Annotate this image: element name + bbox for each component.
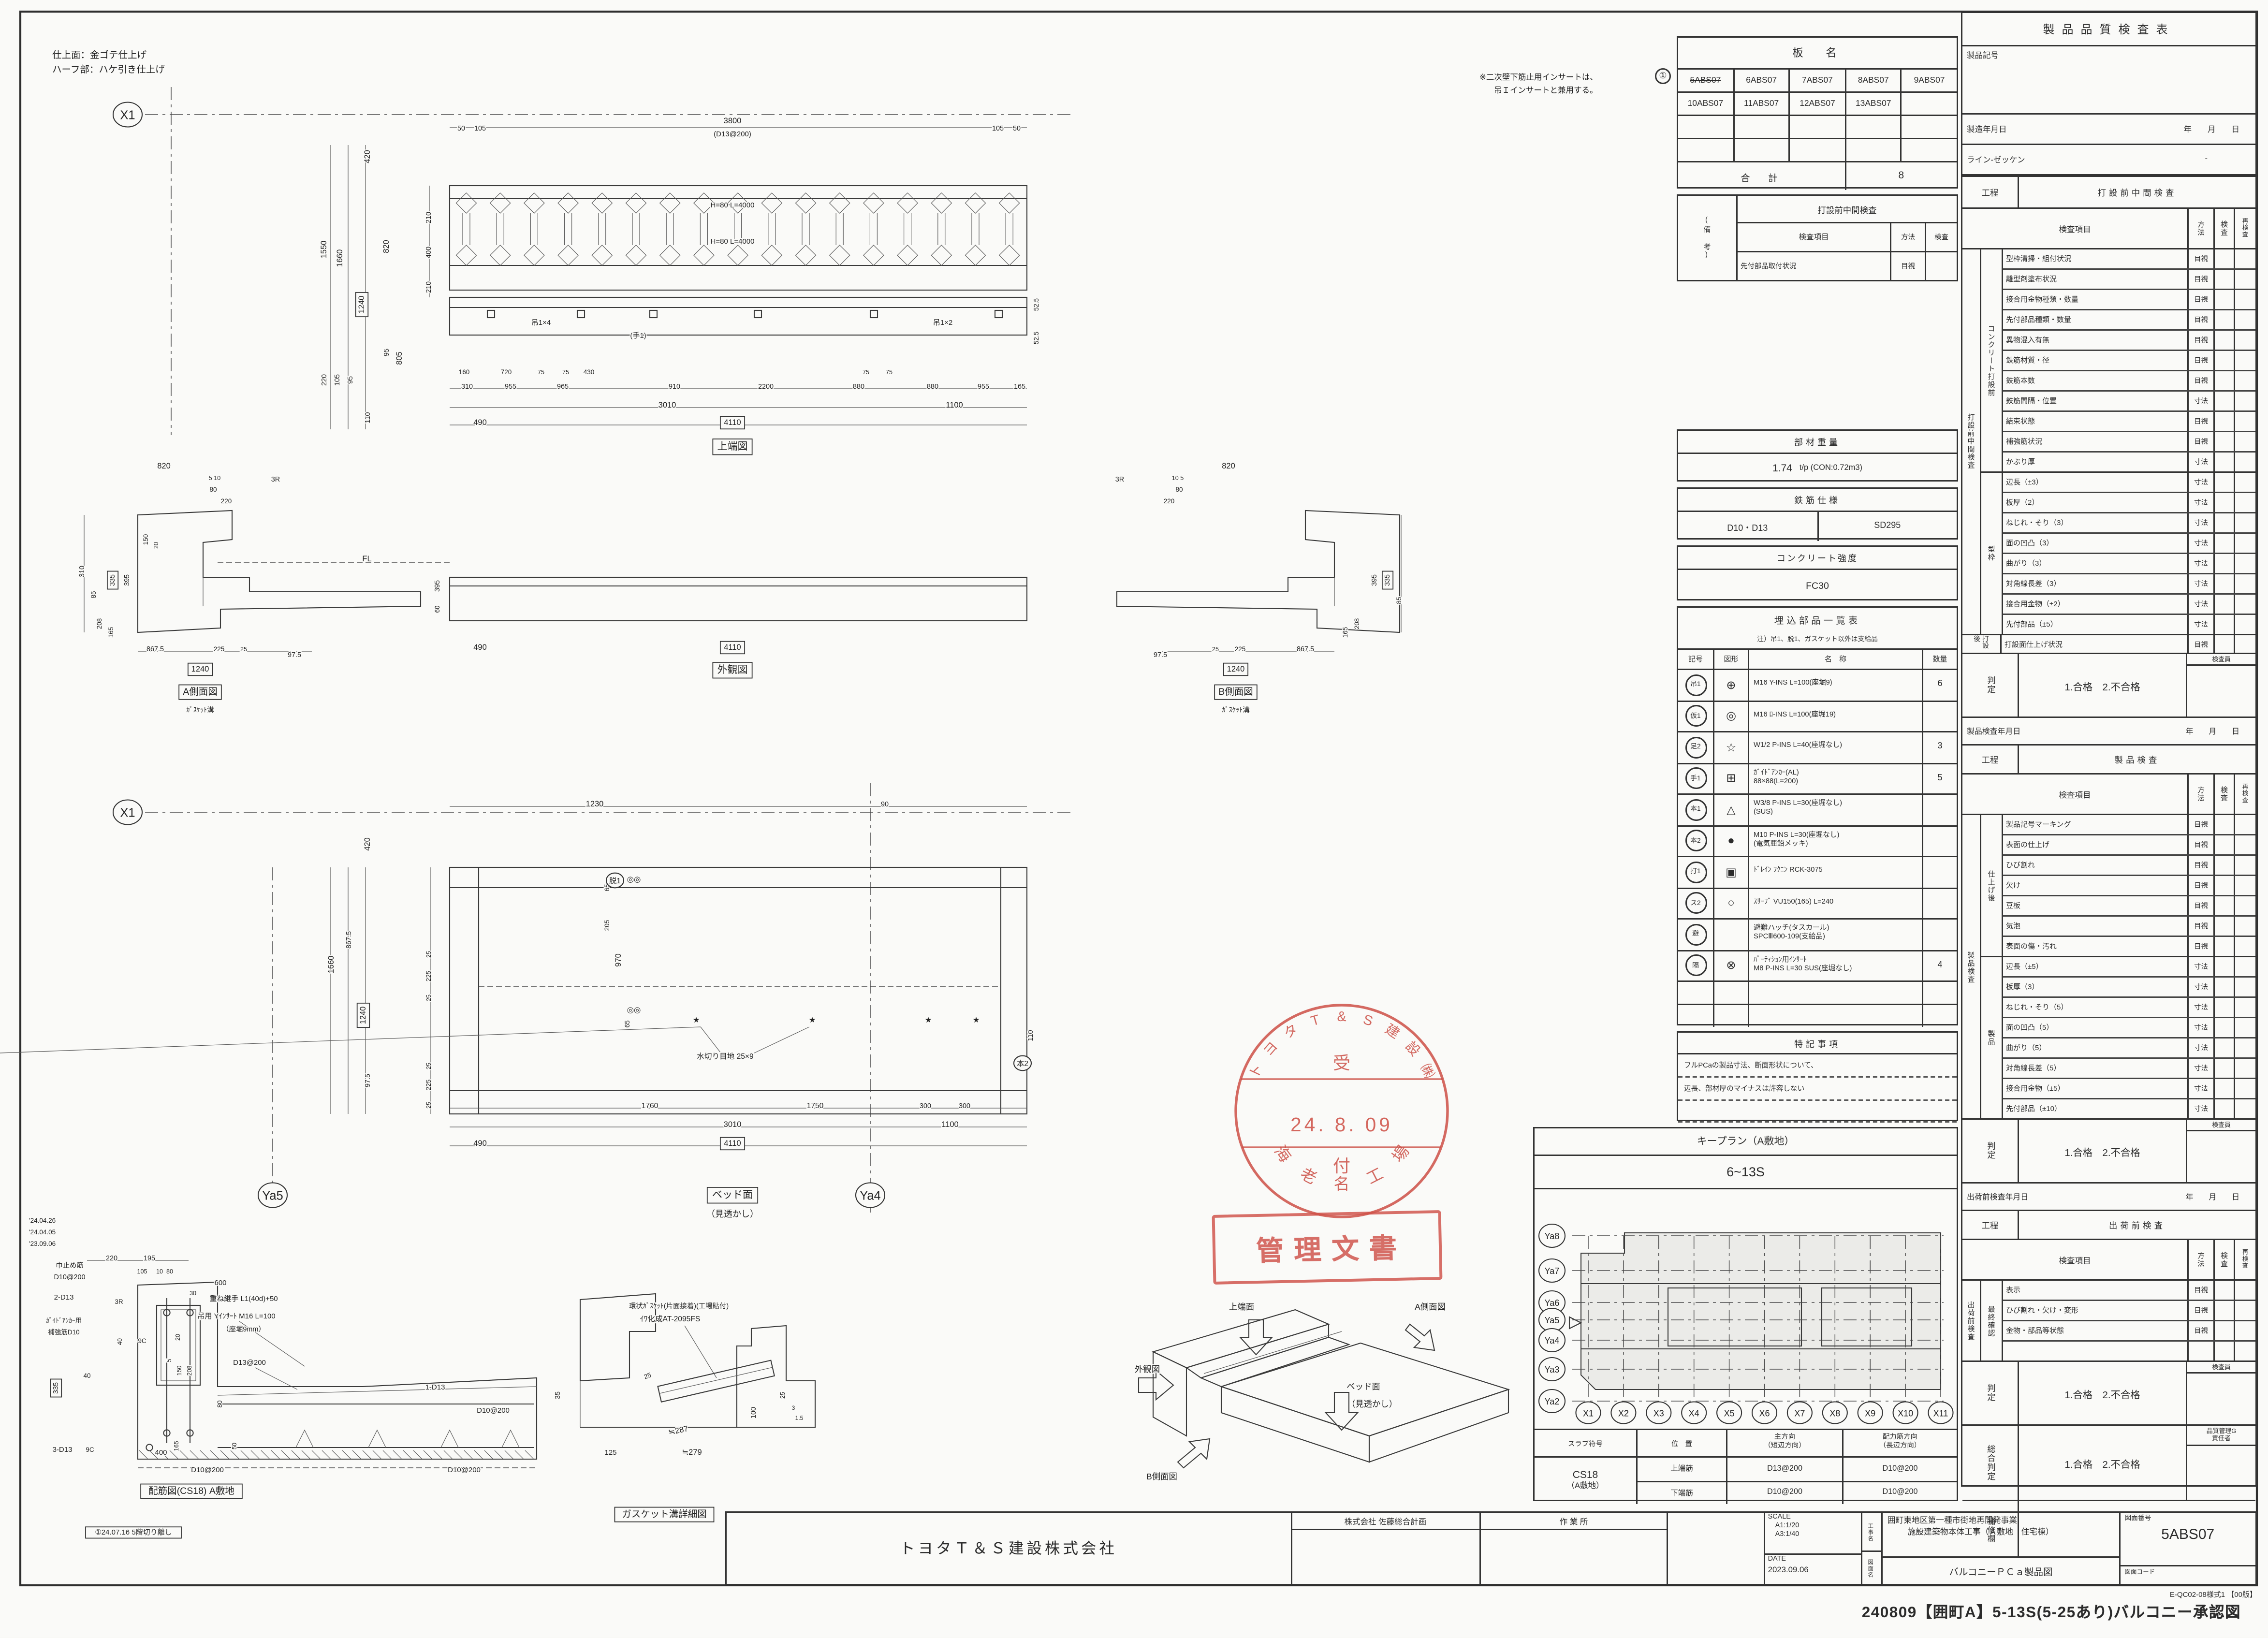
dimension-label: H=80 L=4000 bbox=[711, 201, 755, 209]
inspection-item-row: 曲がり（5）寸法 bbox=[2003, 1037, 2255, 1057]
inspection-item-row: 先付部品（±5）寸法 bbox=[2003, 614, 2255, 634]
dimension-label: 80 bbox=[209, 486, 217, 493]
svg-text:225: 225 bbox=[214, 645, 225, 653]
svg-text:4110: 4110 bbox=[724, 643, 741, 652]
dimension-label: '23.09.06 bbox=[29, 1240, 56, 1247]
svg-text:110: 110 bbox=[1027, 1030, 1035, 1041]
svg-text:（座堀9mm）: （座堀9mm） bbox=[222, 1325, 265, 1333]
dimension-label: 吊1×4 bbox=[531, 319, 551, 327]
inspection-item-row: 型枠清掃・組付状況目視 bbox=[2003, 249, 2255, 268]
svg-text:★: ★ bbox=[693, 1016, 700, 1024]
dimension-label: 335 bbox=[107, 571, 118, 589]
dimension-label: ◎◎ bbox=[627, 875, 641, 884]
dimension-label: A側面図 bbox=[179, 685, 221, 700]
concrete-strength-table: コンクリート強度FC30 bbox=[1677, 545, 1958, 600]
svg-text:B側面図: B側面図 bbox=[1218, 687, 1253, 697]
svg-text:受: 受 bbox=[1333, 1053, 1350, 1073]
panel-name-cell bbox=[1901, 116, 1957, 138]
dimension-label: 吊Ｉインサートと兼用する。 bbox=[1494, 86, 1598, 95]
svg-text:25: 25 bbox=[1212, 646, 1219, 653]
parts-row bbox=[1678, 980, 1957, 1004]
date-label: DATE bbox=[1768, 1556, 1786, 1564]
svg-text:100: 100 bbox=[750, 1407, 758, 1419]
svg-text:★: ★ bbox=[973, 1016, 980, 1024]
svg-text:220: 220 bbox=[1164, 497, 1175, 505]
panel-name-cell bbox=[1733, 116, 1789, 138]
svg-text:90: 90 bbox=[881, 801, 889, 808]
dimension-label: 400 bbox=[155, 1448, 167, 1457]
dimension-label: 75 bbox=[538, 369, 544, 376]
svg-text:1240: 1240 bbox=[357, 296, 366, 314]
dimension-label: 50 bbox=[457, 125, 465, 132]
svg-text:65: 65 bbox=[624, 1020, 631, 1027]
title-block: トヨタＴ＆Ｓ建設株式会社 株式会社 佐藤総合計画 作 業 所 SCALE A1:… bbox=[725, 1511, 2257, 1585]
dimension-label: 85 bbox=[90, 591, 97, 598]
svg-text:4110: 4110 bbox=[724, 418, 741, 427]
dimension-label: 110 bbox=[364, 412, 372, 424]
svg-text:3010: 3010 bbox=[658, 401, 676, 409]
svg-text:60: 60 bbox=[434, 605, 441, 613]
inspection-item-row: 対角線長差（5）寸法 bbox=[2003, 1057, 2255, 1078]
dimension-label: 外観図 bbox=[1135, 1364, 1160, 1374]
dimension-label: 220 bbox=[221, 497, 232, 505]
drawing-number-label: 図面番号 bbox=[2124, 1514, 2251, 1523]
svg-text:720: 720 bbox=[501, 368, 512, 376]
svg-text:880: 880 bbox=[927, 383, 938, 391]
dimension-label: 60 bbox=[434, 605, 441, 613]
svg-text:420: 420 bbox=[363, 837, 372, 851]
dimension-label: 重ね継手 L1(40d)+50 bbox=[209, 1295, 278, 1303]
inspection-item-row: 製品記号マーキング目視 bbox=[2003, 815, 2255, 834]
inspection-item-row: 曲がり（3）寸法 bbox=[2003, 553, 2255, 573]
dimension-label: 335 bbox=[51, 1379, 61, 1397]
drawing-code-label: 図面コード bbox=[2120, 1566, 2255, 1584]
panel-name-cell: 6ABS07 bbox=[1733, 70, 1789, 91]
dimension-label: 仕上面：金ゴテ仕上げ bbox=[52, 50, 147, 60]
dimension-label: 吊1×2 bbox=[933, 319, 952, 327]
svg-text:名: 名 bbox=[1334, 1175, 1350, 1193]
dimension-label: ｲﾜ化成AT-2095FS bbox=[640, 1315, 701, 1323]
svg-text:3-D13: 3-D13 bbox=[53, 1446, 73, 1454]
parts-row: 避避難ハッチ(タスカール) SPCⅢ600-109(支給品) bbox=[1678, 918, 1957, 950]
svg-text:1660: 1660 bbox=[327, 956, 336, 974]
svg-text:★: ★ bbox=[925, 1016, 932, 1024]
svg-text:400: 400 bbox=[155, 1448, 167, 1457]
special-notes: 特記事項フルPCaの製品寸法、断面形状について、辺長、部材厚のマイナスは許容しな… bbox=[1677, 1031, 1958, 1121]
svg-text:40: 40 bbox=[117, 1338, 123, 1345]
dimension-label: 225 bbox=[425, 1080, 432, 1091]
svg-text:867.5: 867.5 bbox=[345, 931, 353, 949]
blank-cell bbox=[1667, 1513, 1763, 1584]
inspection-item-row: 豆板目視 bbox=[2003, 895, 2255, 915]
svg-text:5: 5 bbox=[166, 1359, 173, 1362]
svg-text:125: 125 bbox=[604, 1448, 616, 1457]
svg-text:3: 3 bbox=[792, 1404, 795, 1411]
dimension-label: 110 bbox=[1027, 1030, 1035, 1041]
svg-text:395: 395 bbox=[123, 574, 131, 586]
svg-text:220: 220 bbox=[321, 374, 328, 386]
dimension-label: ★ bbox=[693, 1016, 700, 1024]
grid-bubble: X1 bbox=[113, 800, 142, 825]
dimension-label: '24.04.05 bbox=[29, 1228, 56, 1236]
svg-text:B側面図: B側面図 bbox=[1146, 1472, 1177, 1481]
dimension-label: 3R bbox=[1115, 476, 1124, 483]
svg-text:補強筋D10: 補強筋D10 bbox=[48, 1328, 79, 1336]
inspection-item-row: 辺長（±3）寸法 bbox=[2003, 473, 2255, 492]
drawing-number: 5ABS07 bbox=[2124, 1527, 2251, 1543]
dimension-label: D10@200 bbox=[448, 1466, 481, 1474]
dimension-label: 5 bbox=[166, 1359, 173, 1362]
svg-text:970: 970 bbox=[614, 953, 623, 967]
svg-text:吊Ｉインサートと兼用する。: 吊Ｉインサートと兼用する。 bbox=[1494, 86, 1598, 95]
svg-text:吊用 Yｲﾝｻｰﾄ M16 L=100: 吊用 Yｲﾝｻｰﾄ M16 L=100 bbox=[197, 1312, 275, 1320]
dimension-label: 25 bbox=[425, 1102, 432, 1109]
drawing-name: バルコニーＰＣａ製品図 bbox=[1883, 1558, 2119, 1584]
svg-text:50: 50 bbox=[457, 125, 465, 132]
dimension-label: 1760 bbox=[642, 1102, 658, 1110]
receipt-stamp: トヨタT&S建設㈱海老名工場受24. 8. 09付 bbox=[1236, 1005, 1448, 1217]
dimension-label: （座堀9mm） bbox=[222, 1325, 265, 1333]
svg-text:52.5: 52.5 bbox=[1033, 332, 1040, 344]
svg-text:95: 95 bbox=[383, 349, 391, 356]
svg-text:ベッド面: ベッド面 bbox=[712, 1189, 753, 1200]
dimension-label: 867.5 bbox=[146, 645, 164, 653]
dimension-label: 1230 bbox=[586, 800, 604, 808]
dimension-label: 4110 bbox=[720, 417, 745, 429]
panel-name-cell bbox=[1844, 116, 1901, 138]
svg-text:600: 600 bbox=[214, 1279, 226, 1287]
dimension-label: 210 bbox=[425, 281, 433, 293]
svg-text:3010: 3010 bbox=[724, 1120, 742, 1129]
dimension-label: 225 bbox=[214, 645, 225, 653]
panel-name-cell: 10ABS07 bbox=[1678, 93, 1733, 115]
dimension-label: 310 bbox=[78, 566, 86, 577]
svg-text:85: 85 bbox=[1395, 597, 1403, 604]
svg-text:ｲﾜ化成AT-2095FS: ｲﾜ化成AT-2095FS bbox=[640, 1315, 701, 1323]
svg-text:50: 50 bbox=[1013, 125, 1021, 132]
svg-text:1750: 1750 bbox=[807, 1102, 824, 1110]
dimension-label: 105 bbox=[474, 125, 486, 132]
svg-text:310: 310 bbox=[461, 383, 473, 391]
inspection-item-row: 離型剤塗布状況目視 bbox=[2003, 268, 2255, 289]
embedded-parts-table: 埋込部品一覧表注）吊1、脱1、ガスケット以外は支給品記号図形名 称数量吊1⊕M1… bbox=[1677, 606, 1958, 1025]
project-name-2: 施設建築物本体工事（Ａ敷地 住宅棟） bbox=[1888, 1529, 2054, 1538]
dimension-label: 補強筋D10 bbox=[48, 1328, 79, 1336]
panel-name-cell: 12ABS07 bbox=[1789, 93, 1845, 115]
svg-text:Ya4: Ya4 bbox=[860, 1189, 880, 1203]
dimension-label: 75 bbox=[562, 369, 569, 376]
svg-text:30: 30 bbox=[190, 1290, 196, 1297]
dimension-label: ｶﾞｽｹｯﾄ溝 bbox=[1222, 706, 1250, 714]
svg-text:25: 25 bbox=[425, 1063, 432, 1069]
dimension-label: 20 bbox=[153, 542, 160, 549]
dimension-label: ◎◎ bbox=[627, 1006, 641, 1014]
grid-bubble: Ya4 bbox=[856, 1183, 885, 1208]
dimension-label: 395 bbox=[434, 580, 441, 592]
svg-text:ｶﾞｽｹｯﾄ溝: ｶﾞｽｹｯﾄ溝 bbox=[186, 706, 214, 714]
svg-text:150: 150 bbox=[176, 1365, 183, 1375]
svg-text:①24.07.16 5階切り離し: ①24.07.16 5階切り離し bbox=[95, 1528, 172, 1536]
dimension-label: 205 bbox=[603, 920, 611, 931]
dimension-label: 1240 bbox=[188, 663, 212, 676]
svg-text:H=80 L=4000: H=80 L=4000 bbox=[711, 237, 755, 246]
svg-text:20: 20 bbox=[175, 1334, 181, 1341]
svg-text:水切り目地 25×9: 水切り目地 25×9 bbox=[697, 1052, 753, 1061]
svg-text:X1: X1 bbox=[120, 109, 135, 122]
svg-text:80: 80 bbox=[216, 1400, 223, 1407]
scale-a1: A1:1/20 bbox=[1768, 1523, 1800, 1530]
dimension-label: 50 bbox=[1013, 125, 1021, 132]
dimension-label: 965 bbox=[557, 383, 569, 391]
dimension-label: 4110 bbox=[720, 642, 745, 654]
dimension-label: 1550 bbox=[320, 241, 328, 259]
dimension-label: 97.5 bbox=[1154, 651, 1167, 659]
inspection-item-row: ねじれ・そり（3）寸法 bbox=[2003, 512, 2255, 532]
svg-text:110: 110 bbox=[364, 412, 372, 424]
svg-text:1240: 1240 bbox=[191, 665, 209, 673]
dimension-label: 300 bbox=[959, 1102, 970, 1110]
key-plan-title: キープラン（A敷地） bbox=[1535, 1128, 1957, 1156]
drawing-sheet: 仕上面：金ゴテ仕上げハーフ部：ハケ引き仕上げ※二次壁下筋止用インサートは、吊Ｉイ… bbox=[0, 0, 2268, 1638]
svg-text:巾止め筋: 巾止め筋 bbox=[56, 1261, 84, 1270]
svg-text:D13@200: D13@200 bbox=[233, 1359, 266, 1367]
dimension-label: 395 bbox=[1371, 574, 1378, 586]
dimension-label: 75 bbox=[886, 369, 893, 376]
inspection-item-row: 接合用金物（±2）寸法 bbox=[2003, 593, 2255, 614]
dimension-label: 2200 bbox=[758, 383, 774, 391]
svg-text:105: 105 bbox=[992, 125, 1004, 132]
svg-text:165: 165 bbox=[173, 1441, 180, 1451]
svg-text:9C: 9C bbox=[86, 1446, 94, 1453]
dimension-label: (D13@200) bbox=[714, 130, 751, 138]
svg-text:25: 25 bbox=[643, 1371, 652, 1380]
panel-name-cell bbox=[1844, 139, 1901, 161]
svg-text:5 10: 5 10 bbox=[209, 475, 221, 482]
inspection-item-row: 面の凹凸（3）寸法 bbox=[2003, 532, 2255, 553]
inspection-item-row: ひび割れ目視 bbox=[2003, 854, 2255, 875]
inspection-item-row: 板厚（2）寸法 bbox=[2003, 492, 2255, 512]
svg-text:75: 75 bbox=[886, 369, 893, 376]
svg-text:40: 40 bbox=[83, 1372, 90, 1379]
dimension-label: 1.5 bbox=[795, 1415, 804, 1421]
svg-text:490: 490 bbox=[473, 418, 487, 427]
svg-text:35: 35 bbox=[554, 1391, 562, 1399]
key-plan-floors: 6~13S bbox=[1535, 1156, 1957, 1189]
svg-text:※二次壁下筋止用インサートは、: ※二次壁下筋止用インサートは、 bbox=[1479, 73, 1598, 82]
svg-text:25: 25 bbox=[779, 1392, 786, 1399]
dimension-label: 220 bbox=[106, 1255, 117, 1262]
svg-text:205: 205 bbox=[603, 920, 611, 931]
dimension-label: 95 bbox=[347, 376, 354, 384]
inspection-item-row: 金物・部品等状態目視 bbox=[2003, 1320, 2255, 1340]
dimension-label: 25 bbox=[779, 1392, 786, 1399]
dimension-label: ベッド面 bbox=[707, 1187, 758, 1203]
dimension-label: 25 bbox=[1212, 646, 1219, 653]
dimension-label: 430 bbox=[584, 368, 595, 376]
svg-text:（見透かし）: （見透かし） bbox=[1347, 1399, 1397, 1409]
dimension-label: 80 bbox=[1175, 486, 1183, 493]
panel-name-cell bbox=[1733, 139, 1789, 161]
form-code: E-QC02-08様式1 【00版】 bbox=[1929, 1590, 2257, 1600]
dimension-label: 335 bbox=[1382, 571, 1393, 589]
svg-text:'24.04.05: '24.04.05 bbox=[29, 1228, 56, 1236]
inspection-item-row: 鉄筋本数目視 bbox=[2003, 370, 2255, 390]
dimension-label: 30 bbox=[190, 1290, 196, 1297]
dimension-label: 165 bbox=[1014, 383, 1025, 391]
parts-row: 手1⊞ｶﾞｲﾄﾞｱﾝｶｰ(AL) 88×88(L=200)5 bbox=[1678, 762, 1957, 794]
svg-text:ヨ: ヨ bbox=[1260, 1038, 1281, 1059]
builder-name: トヨタＴ＆Ｓ建設株式会社 bbox=[727, 1513, 1290, 1584]
inspection-item-row: 表面の傷・汚れ目視 bbox=[2003, 936, 2255, 956]
dimension-label: 955 bbox=[978, 383, 989, 391]
svg-text:955: 955 bbox=[505, 383, 516, 391]
svg-text:867.5: 867.5 bbox=[146, 645, 164, 653]
inspection-item-row: かぶり厚寸法 bbox=[2003, 451, 2255, 471]
svg-text:50: 50 bbox=[231, 1443, 238, 1449]
svg-text:重ね継手 L1(40d)+50: 重ね継手 L1(40d)+50 bbox=[209, 1295, 278, 1303]
grid-bubble: 本2 bbox=[1014, 1056, 1031, 1071]
svg-text:'24.04.26: '24.04.26 bbox=[29, 1217, 56, 1224]
svg-text:㈱: ㈱ bbox=[1417, 1062, 1437, 1081]
dimension-label: （見透かし） bbox=[1347, 1399, 1397, 1409]
dimension-label: 955 bbox=[505, 383, 516, 391]
grid-bubble: Ya5 bbox=[258, 1183, 287, 1208]
svg-text:210: 210 bbox=[425, 281, 433, 293]
dimension-label: 1240 bbox=[1224, 663, 1248, 676]
architect-name: 株式会社 佐藤総合計画 bbox=[1292, 1513, 1479, 1530]
inspection-item-row bbox=[2003, 1340, 2255, 1360]
dimension-label: 150 bbox=[142, 534, 149, 545]
svg-text:H=80 L=4000: H=80 L=4000 bbox=[711, 201, 755, 209]
svg-text:環状ｶﾞｽｹｯﾄ(片面接着)(工場貼付): 環状ｶﾞｽｹｯﾄ(片面接着)(工場貼付) bbox=[629, 1302, 729, 1310]
dimension-label: 400 bbox=[425, 247, 433, 258]
svg-text:430: 430 bbox=[584, 368, 595, 376]
dimension-label: 820 bbox=[157, 462, 171, 470]
inspection-item-row: 表面の仕上げ目視 bbox=[2003, 834, 2255, 854]
inspection-item-row: 表示目視 bbox=[2003, 1281, 2255, 1300]
svg-text:225: 225 bbox=[425, 971, 432, 982]
dimension-label: 1240 bbox=[357, 1003, 370, 1027]
panel-name-cell: 5ABS07 bbox=[1678, 70, 1733, 91]
dimension-label: 420 bbox=[363, 837, 372, 851]
svg-text:S: S bbox=[1361, 1012, 1375, 1029]
svg-text:建: 建 bbox=[1382, 1021, 1402, 1041]
inspection-item-row: ねじれ・そり（5）寸法 bbox=[2003, 996, 2255, 1017]
svg-text:(手1): (手1) bbox=[630, 332, 646, 340]
svg-text:場: 場 bbox=[1389, 1142, 1412, 1165]
svg-text:老: 老 bbox=[1298, 1164, 1320, 1187]
dimension-label: A側面図 bbox=[1415, 1302, 1446, 1312]
dimension-label: 25 bbox=[425, 951, 432, 958]
inspection-item-row: 補強筋状況目視 bbox=[2003, 431, 2255, 451]
inspection-item-row: 対角線長差（3）寸法 bbox=[2003, 573, 2255, 593]
dimension-label: 1750 bbox=[807, 1102, 824, 1110]
parts-row: 仮1◎M16 ﾛ-INS L=100(座堀19) bbox=[1678, 700, 1957, 731]
dimension-label: 20 bbox=[175, 1334, 181, 1341]
inspection-item-row: 結束状態目視 bbox=[2003, 410, 2255, 431]
svg-text:脱1: 脱1 bbox=[609, 877, 621, 885]
inspection-item-row: 面の凹凸（5）寸法 bbox=[2003, 1017, 2255, 1037]
dimension-label: 3 bbox=[792, 1404, 795, 1411]
svg-text:820: 820 bbox=[1222, 462, 1235, 470]
dimension-label: 85 bbox=[1395, 597, 1403, 604]
dimension-label: 外観図 bbox=[713, 662, 752, 678]
dimension-label: 225 bbox=[1235, 645, 1246, 653]
dimension-label: ★ bbox=[809, 1016, 816, 1024]
svg-text:880: 880 bbox=[853, 383, 864, 391]
panel-name-cell bbox=[1789, 116, 1845, 138]
dimension-label: 3010 bbox=[724, 1120, 742, 1129]
svg-text:105: 105 bbox=[334, 374, 341, 386]
dimension-label: ベッド面 bbox=[1346, 1382, 1380, 1391]
svg-text:335: 335 bbox=[109, 574, 117, 586]
panel-name-table: 板 名5ABS076ABS077ABS078ABS079ABS0710ABS07… bbox=[1677, 36, 1958, 189]
dimension-label: D10@200 bbox=[191, 1466, 224, 1474]
svg-text:195: 195 bbox=[144, 1255, 155, 1262]
dimension-label: 上端図 bbox=[713, 439, 752, 455]
svg-text:ハーフ部：ハケ引き仕上げ: ハーフ部：ハケ引き仕上げ bbox=[52, 64, 165, 75]
dimension-label: 40 bbox=[83, 1372, 90, 1379]
dimension-label: 300 bbox=[920, 1102, 931, 1110]
svg-text:D10@200: D10@200 bbox=[54, 1273, 85, 1281]
dimension-label: 3010 bbox=[658, 401, 676, 409]
dimension-label: ≒279 bbox=[682, 1448, 702, 1457]
svg-text:上端図: 上端図 bbox=[717, 441, 748, 452]
svg-text:ト: ト bbox=[1246, 1062, 1266, 1081]
dimension-label: 195 bbox=[144, 1255, 155, 1262]
svg-text:◎◎: ◎◎ bbox=[627, 875, 641, 884]
site-sign-space bbox=[1480, 1530, 1668, 1584]
svg-text:3R: 3R bbox=[1115, 476, 1124, 483]
site-office-label: 作 業 所 bbox=[1480, 1513, 1668, 1530]
dimension-label: FL bbox=[362, 555, 371, 563]
svg-text:2200: 2200 bbox=[758, 383, 774, 391]
dimension-label: 160 bbox=[459, 368, 470, 376]
dimension-label: 910 bbox=[669, 383, 680, 391]
quality-inspection-sheet: 製品品質検査表製品記号製造年月日年 月 日ライン-ゼッケン-工程打設前中間検査検… bbox=[1961, 12, 2257, 1487]
svg-text:◎◎: ◎◎ bbox=[627, 1006, 641, 1014]
svg-text:910: 910 bbox=[669, 383, 680, 391]
dimension-label: 9C bbox=[86, 1446, 94, 1453]
svg-text:25: 25 bbox=[425, 1102, 432, 1109]
parts-row: 本2●M10 P-INS L=30(座堀なし) (電気亜鉛メッキ) bbox=[1678, 825, 1957, 856]
svg-text:208: 208 bbox=[186, 1365, 193, 1375]
svg-text:X1: X1 bbox=[120, 806, 135, 820]
svg-text:ガスケット溝詳細図: ガスケット溝詳細図 bbox=[622, 1509, 707, 1520]
project-label: 工事名 bbox=[1863, 1513, 1882, 1552]
drawing-name-label: 図面名 bbox=[1863, 1552, 1882, 1584]
inspection-item-row: 欠け目視 bbox=[2003, 875, 2255, 895]
dimension-label: 970 bbox=[614, 953, 623, 967]
svg-text:D10@200: D10@200 bbox=[191, 1466, 224, 1474]
svg-text:仕上面：金ゴテ仕上げ: 仕上面：金ゴテ仕上げ bbox=[52, 50, 147, 60]
svg-text:1550: 1550 bbox=[320, 241, 328, 259]
dimension-label: ★ bbox=[973, 1016, 980, 1024]
svg-text:（見透かし）: （見透かし） bbox=[706, 1209, 759, 1219]
dimension-label: 820 bbox=[1222, 462, 1235, 470]
svg-text:52.5: 52.5 bbox=[1033, 298, 1040, 311]
svg-text:85: 85 bbox=[90, 591, 97, 598]
svg-text:300: 300 bbox=[920, 1102, 931, 1110]
dimension-label: 97.5 bbox=[364, 1074, 372, 1087]
svg-text:設: 設 bbox=[1402, 1038, 1423, 1059]
svg-text:吊1×4: 吊1×4 bbox=[531, 319, 551, 327]
svg-text:海: 海 bbox=[1271, 1142, 1295, 1165]
member-weight-table: 部材重量1.74t/p (CON:0.72m3) bbox=[1677, 429, 1958, 482]
dimension-label: 150 bbox=[176, 1365, 183, 1375]
inspection-item-row: ひび割れ・欠け・変形目視 bbox=[2003, 1300, 2255, 1320]
svg-text:2-D13: 2-D13 bbox=[54, 1293, 74, 1302]
